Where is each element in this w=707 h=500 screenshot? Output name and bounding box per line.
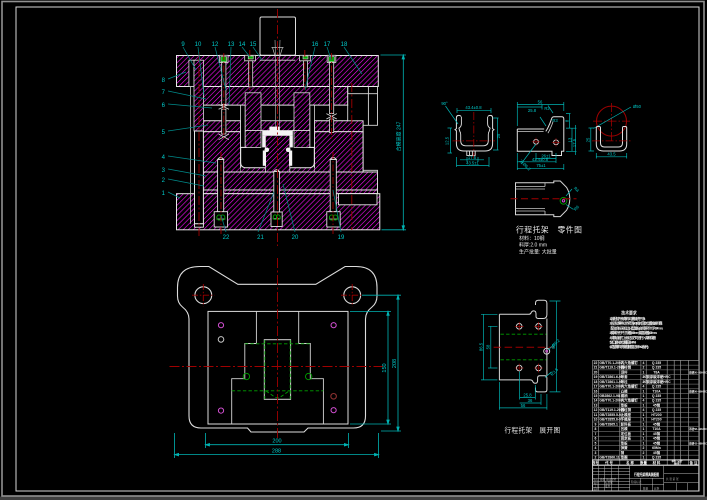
svg-text:1: 1 [643,370,645,374]
svg-text:T10A: T10A [652,427,661,431]
svg-text:代 号: 代 号 [604,460,613,465]
svg-text:GB/T2855.5-90: GB/T2855.5-90 [599,413,622,417]
svg-text:行程托架 展开图: 行程托架 展开图 [505,425,561,434]
svg-text:6.成型零件表面粗糙度达到Ra0.4(抛光).: 6.成型零件表面粗糙度达到Ra0.4(抛光). [610,344,649,349]
svg-text:Q 235: Q 235 [652,361,661,365]
svg-text:14: 14 [239,42,246,48]
svg-text:86.5: 86.5 [478,342,483,351]
svg-text:GB/T2866.11: GB/T2866.11 [599,456,619,460]
svg-text:19: 19 [594,375,598,379]
svg-text:200: 200 [272,439,281,445]
svg-text:料厚:2.0 mm: 料厚:2.0 mm [519,242,547,249]
svg-text:GB/T2855.6-90: GB/T2855.6-90 [599,418,622,422]
svg-text:13: 13 [228,42,235,48]
svg-text:1: 1 [643,394,645,398]
svg-text:比例: 比例 [654,487,660,491]
svg-text:R3: R3 [552,118,558,123]
svg-text:1: 1 [643,413,645,417]
svg-text:Q 235: Q 235 [652,394,661,398]
svg-text:数量: 数量 [639,460,647,465]
svg-text:56: 56 [538,99,543,104]
svg-text:1: 1 [643,404,645,408]
svg-text:25: 25 [496,133,501,138]
svg-text:22: 22 [223,235,230,241]
svg-text:92: 92 [551,344,556,349]
svg-text:R2: R2 [544,106,550,111]
svg-text:8: 8 [595,427,597,431]
svg-text:288: 288 [272,449,281,455]
svg-text:生产批量: 大批量: 生产批量: 大批量 [519,248,557,255]
svg-text:4: 4 [595,446,597,450]
svg-text:1: 1 [643,418,645,422]
svg-text:GB/T70.1-2000: GB/T70.1-2000 [599,399,622,403]
svg-text:1: 1 [643,432,645,436]
svg-text:17: 17 [594,385,598,389]
svg-text:合模高度 247: 合模高度 247 [396,121,403,151]
svg-text:2: 2 [595,456,597,460]
svg-text:内六角螺钉: 内六角螺钉 [621,360,639,365]
svg-text:25.8: 25.8 [528,108,537,113]
svg-text:配合 良好无松动, 分型面贴合间隙不大于0.04 mm.: 配合 良好无松动, 分型面贴合间隙不大于0.04 mm. [611,325,664,330]
svg-text:4: 4 [643,385,645,389]
svg-text:21: 21 [594,366,598,370]
svg-text:10: 10 [594,418,598,422]
svg-text:Q 235: Q 235 [652,456,661,460]
svg-text:淬硬56~60HRC: 淬硬56~60HRC [689,389,707,393]
svg-text:GB/T70.1-2000: GB/T70.1-2000 [599,385,622,389]
svg-text:16: 16 [312,42,319,48]
svg-text:90°: 90° [441,101,448,106]
svg-text:43.4±0.8: 43.4±0.8 [465,105,482,110]
svg-text:6: 6 [595,437,597,441]
svg-text:2: 2 [643,366,645,370]
svg-text:1: 1 [643,389,645,393]
svg-text:22: 22 [594,361,598,365]
svg-text:12.5: 12.5 [445,136,450,145]
svg-text:GB/T2861.1-90: GB/T2861.1-90 [599,380,622,384]
svg-text:行程托架模具装配图: 行程托架模具装配图 [633,471,659,478]
svg-text:Q 235: Q 235 [652,399,661,403]
svg-text:18: 18 [341,42,348,48]
svg-text:4: 4 [643,361,645,365]
svg-text:20: 20 [292,235,299,241]
svg-text:18: 18 [594,380,598,384]
svg-text:Q 235: Q 235 [652,366,661,370]
svg-text:阶段标记: 阶段标记 [631,480,642,484]
svg-text:65Mn: 65Mn [652,446,661,450]
svg-text:43.4±0.8: 43.4±0.8 [532,157,549,162]
svg-text:7: 7 [595,432,597,436]
svg-text:2: 2 [643,446,645,450]
svg-text:工艺: 工艺 [594,484,600,488]
svg-text:共 张 第 张: 共 张 第 张 [666,477,679,481]
svg-text:4.试模合格, 打上标记后方可进行入库和保管.: 4.试模合格, 打上标记后方可进行入库和保管. [610,335,657,340]
svg-text:13: 13 [594,404,598,408]
svg-text:4: 4 [643,408,645,412]
svg-text:1.装配前所有零件均需清洗干净.: 1.装配前所有零件均需清洗干净. [610,316,646,321]
svg-text:16: 16 [594,389,598,393]
svg-text:1: 1 [643,422,645,426]
svg-text:GB/T2865.1: GB/T2865.1 [599,422,618,426]
svg-text:14: 14 [594,399,598,403]
svg-text:10: 10 [195,42,202,48]
svg-text:5.浇口套与定位圈配合H7/m6.: 5.浇口套与定位圈配合H7/m6. [610,340,637,345]
svg-text:淬硬58~62HRC: 淬硬58~62HRC [689,427,707,431]
svg-text:Q 235: Q 235 [652,385,661,389]
svg-text:4: 4 [643,399,645,403]
svg-text:9: 9 [595,422,597,426]
svg-text:19: 19 [338,235,345,241]
svg-text:备 注: 备 注 [689,460,698,465]
svg-text:12: 12 [594,408,598,412]
svg-text:43.5: 43.5 [607,152,616,157]
svg-text:名 称: 名 称 [626,460,634,465]
svg-text:12: 12 [212,42,219,48]
svg-text:5: 5 [595,441,597,445]
svg-text:15: 15 [250,42,257,48]
svg-text:GB2862.1-98: GB2862.1-98 [599,394,619,398]
svg-text:36: 36 [528,398,533,403]
svg-text:11: 11 [594,413,598,417]
svg-text:25: 25 [585,137,590,142]
svg-text:设计: 设计 [594,481,600,485]
svg-text:150: 150 [382,363,388,372]
svg-text:GB/T2861.6-90: GB/T2861.6-90 [599,375,622,379]
svg-text:T8A: T8A [653,370,660,374]
svg-text:2.各活动零件动作灵活(±0.1), 相对固定位置 准确可靠: 2.各活动零件动作灵活(±0.1), 相对固定位置 准确可靠 [609,321,663,326]
svg-text:25.8: 25.8 [523,393,532,398]
svg-text:行程托架 零件图: 行程托架 零件图 [516,225,582,235]
svg-text:21: 21 [257,235,264,241]
svg-text:HT200: HT200 [651,413,661,417]
svg-text:17.5: 17.5 [572,138,577,147]
svg-text:GB/T70.1-2000: GB/T70.1-2000 [599,361,622,365]
svg-text:1: 1 [643,427,645,431]
svg-text:HT200: HT200 [651,418,661,422]
svg-text:20: 20 [594,370,598,374]
svg-text:淬硬50~55HRC: 淬硬50~55HRC [689,370,707,374]
svg-text:3.模具外形尺寸误差±0.5mm, 高度误差±0.3mm.: 3.模具外形尺寸误差±0.5mm, 高度误差±0.3mm. [610,330,658,335]
svg-text:数量: 数量 [643,487,649,491]
svg-text:Q 235: Q 235 [652,408,661,412]
svg-text:2: 2 [643,451,645,455]
svg-text:T10A: T10A [652,389,661,393]
svg-text:1: 1 [643,456,645,460]
svg-text:Ø50: Ø50 [633,104,642,109]
svg-text:17: 17 [324,42,331,48]
svg-text:208: 208 [392,359,398,368]
svg-text:技术要求: 技术要求 [621,310,637,317]
svg-text:56: 56 [521,403,526,408]
svg-text:58: 58 [486,344,491,349]
svg-text:75±1: 75±1 [536,163,546,168]
svg-text:批准: 批准 [605,484,611,488]
svg-text:标准化: 标准化 [605,481,613,485]
svg-text:15: 15 [594,394,598,398]
svg-text:材 料: 材 料 [652,460,661,465]
svg-text:3: 3 [595,451,597,455]
svg-text:淬硬43~48HRC: 淬硬43~48HRC [689,441,707,445]
svg-text:17.5: 17.5 [468,155,477,160]
svg-text:1: 1 [643,441,645,445]
svg-text:43.5±1: 43.5±1 [466,160,479,165]
svg-text:材料：10钢: 材料：10钢 [519,235,545,242]
svg-text:1: 1 [643,437,645,441]
